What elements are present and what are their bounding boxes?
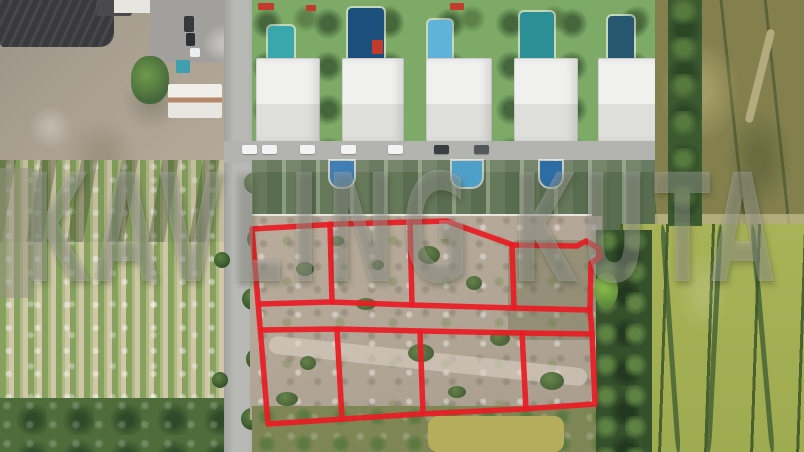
sun-lounger — [306, 5, 316, 11]
shrub — [408, 344, 434, 362]
aerial-photo: KAVLING KUTA — [0, 0, 804, 452]
truck — [176, 60, 190, 73]
shrub — [540, 372, 564, 390]
parked-car — [186, 33, 195, 46]
dry-grass-patch — [428, 416, 564, 452]
watermark: KAVLING KUTA — [0, 160, 804, 300]
sun-lounger — [258, 3, 274, 10]
white-villa-roof — [342, 58, 404, 142]
dense-trees-bottom — [0, 398, 252, 452]
roadside-tree — [212, 372, 228, 388]
sun-lounger — [450, 3, 464, 10]
white-villa-roof — [514, 58, 578, 142]
shrub — [448, 386, 466, 398]
white-villa-roof — [256, 58, 320, 142]
shrub — [490, 330, 510, 346]
watermark-text: KAVLING KUTA — [23, 143, 780, 317]
sun-lounger — [372, 40, 383, 54]
bush — [131, 56, 169, 104]
parked-car — [190, 48, 200, 57]
parked-car — [184, 16, 194, 32]
shrub — [276, 392, 298, 406]
shrub — [300, 356, 316, 370]
white-villa-roof — [426, 58, 492, 142]
small-house-roof — [168, 84, 222, 118]
